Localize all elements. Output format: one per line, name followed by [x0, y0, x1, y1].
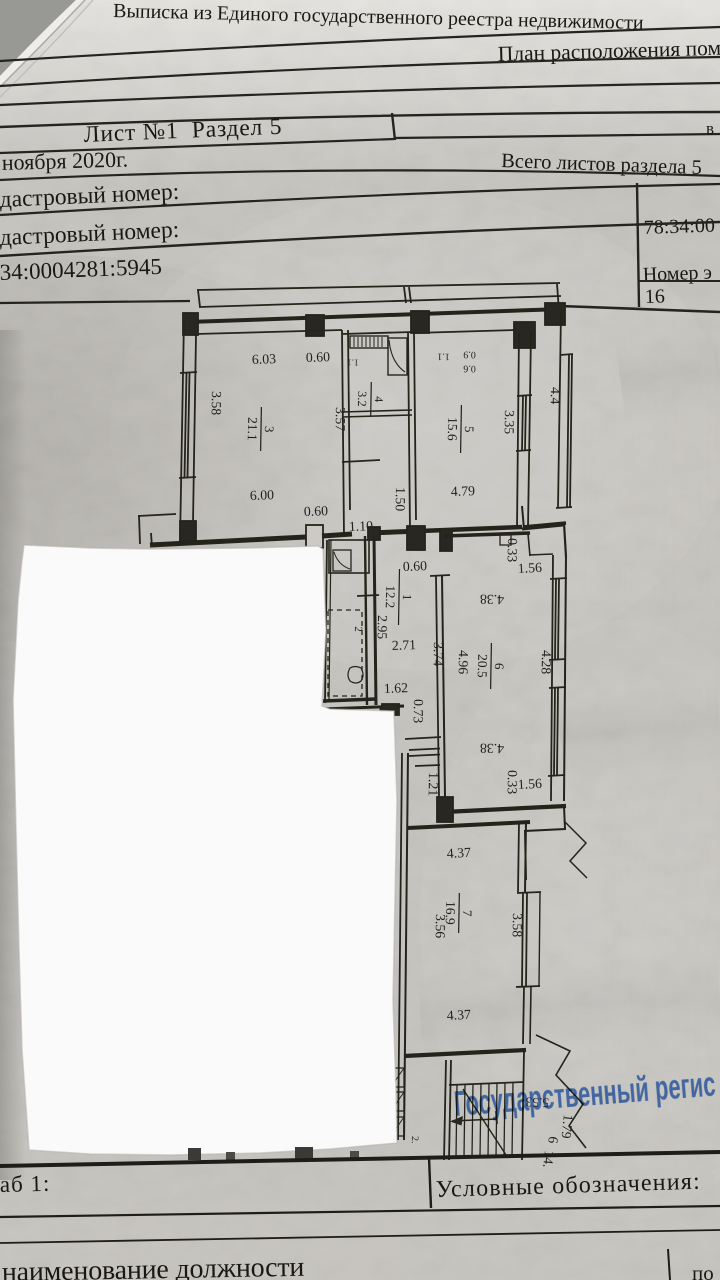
svg-text:2.: 2. [409, 1136, 420, 1144]
svg-text:1.1: 1.1 [437, 351, 450, 362]
svg-text:0.9: 0.9 [463, 349, 476, 360]
svg-text:3.35: 3.35 [502, 410, 517, 435]
svg-text:4.79: 4.79 [451, 483, 476, 499]
svg-text:4.38: 4.38 [480, 741, 505, 757]
svg-text:4: 4 [372, 396, 386, 402]
svg-text:4.38: 4.38 [480, 592, 505, 608]
svg-text:6: 6 [492, 663, 507, 670]
svg-text:5.53: 5.53 [525, 1094, 550, 1110]
svg-text:2.95: 2.95 [375, 615, 390, 640]
svg-text:Номер э: Номер э [642, 262, 712, 286]
svg-text:1.1: 1.1 [346, 356, 358, 366]
svg-text:1.56: 1.56 [517, 776, 542, 792]
svg-text:0.6: 0.6 [463, 363, 476, 374]
svg-text:0.33: 0.33 [505, 538, 520, 563]
svg-text:20.5: 20.5 [475, 654, 490, 678]
svg-text:3.58: 3.58 [510, 913, 525, 938]
svg-text:аб 1:: аб 1: [0, 1171, 51, 1197]
svg-text:12.2: 12.2 [383, 585, 398, 608]
svg-text:14.: 14. [540, 1150, 557, 1169]
svg-text:21.1: 21.1 [245, 417, 260, 441]
svg-text:6.03: 6.03 [252, 351, 277, 367]
svg-text:1.62: 1.62 [384, 680, 409, 696]
svg-text:5: 5 [462, 426, 477, 433]
svg-text:3.2: 3.2 [355, 391, 369, 407]
svg-text:2.71: 2.71 [392, 637, 417, 653]
svg-text:ноября 2020г.: ноября 2020г. [1, 146, 128, 175]
svg-text:4.28: 4.28 [539, 650, 554, 675]
svg-text:2: 2 [352, 626, 364, 632]
svg-text:3.57: 3.57 [333, 407, 348, 432]
svg-text:наименование должности: наименование должности [2, 1252, 305, 1280]
svg-text:1: 1 [400, 594, 414, 600]
svg-text:16: 16 [645, 285, 666, 308]
svg-text:3.56: 3.56 [433, 914, 448, 939]
svg-text:1.21: 1.21 [426, 772, 441, 797]
svg-text:0.73: 0.73 [411, 699, 426, 724]
svg-text:7: 7 [460, 910, 475, 917]
svg-text:6.00: 6.00 [250, 487, 275, 503]
svg-text:4.37: 4.37 [446, 1007, 471, 1023]
svg-text:1.56: 1.56 [517, 560, 542, 576]
svg-text:15.6: 15.6 [445, 417, 460, 441]
svg-text:0.60: 0.60 [306, 349, 331, 365]
svg-text:78:34:00: 78:34:00 [643, 215, 715, 239]
svg-text:по: по [692, 1261, 714, 1280]
svg-text:1.79: 1.79 [558, 1114, 575, 1140]
svg-text:4.37: 4.37 [446, 845, 471, 861]
svg-text:0.60: 0.60 [304, 503, 329, 519]
svg-text:0.60: 0.60 [403, 558, 428, 574]
svg-text:в: в [706, 119, 714, 138]
svg-text:1.50: 1.50 [393, 487, 408, 512]
svg-text:3: 3 [262, 426, 277, 433]
svg-text:4.4: 4.4 [548, 387, 563, 405]
svg-text:3.58: 3.58 [209, 391, 224, 416]
svg-text:4.96: 4.96 [456, 650, 471, 675]
